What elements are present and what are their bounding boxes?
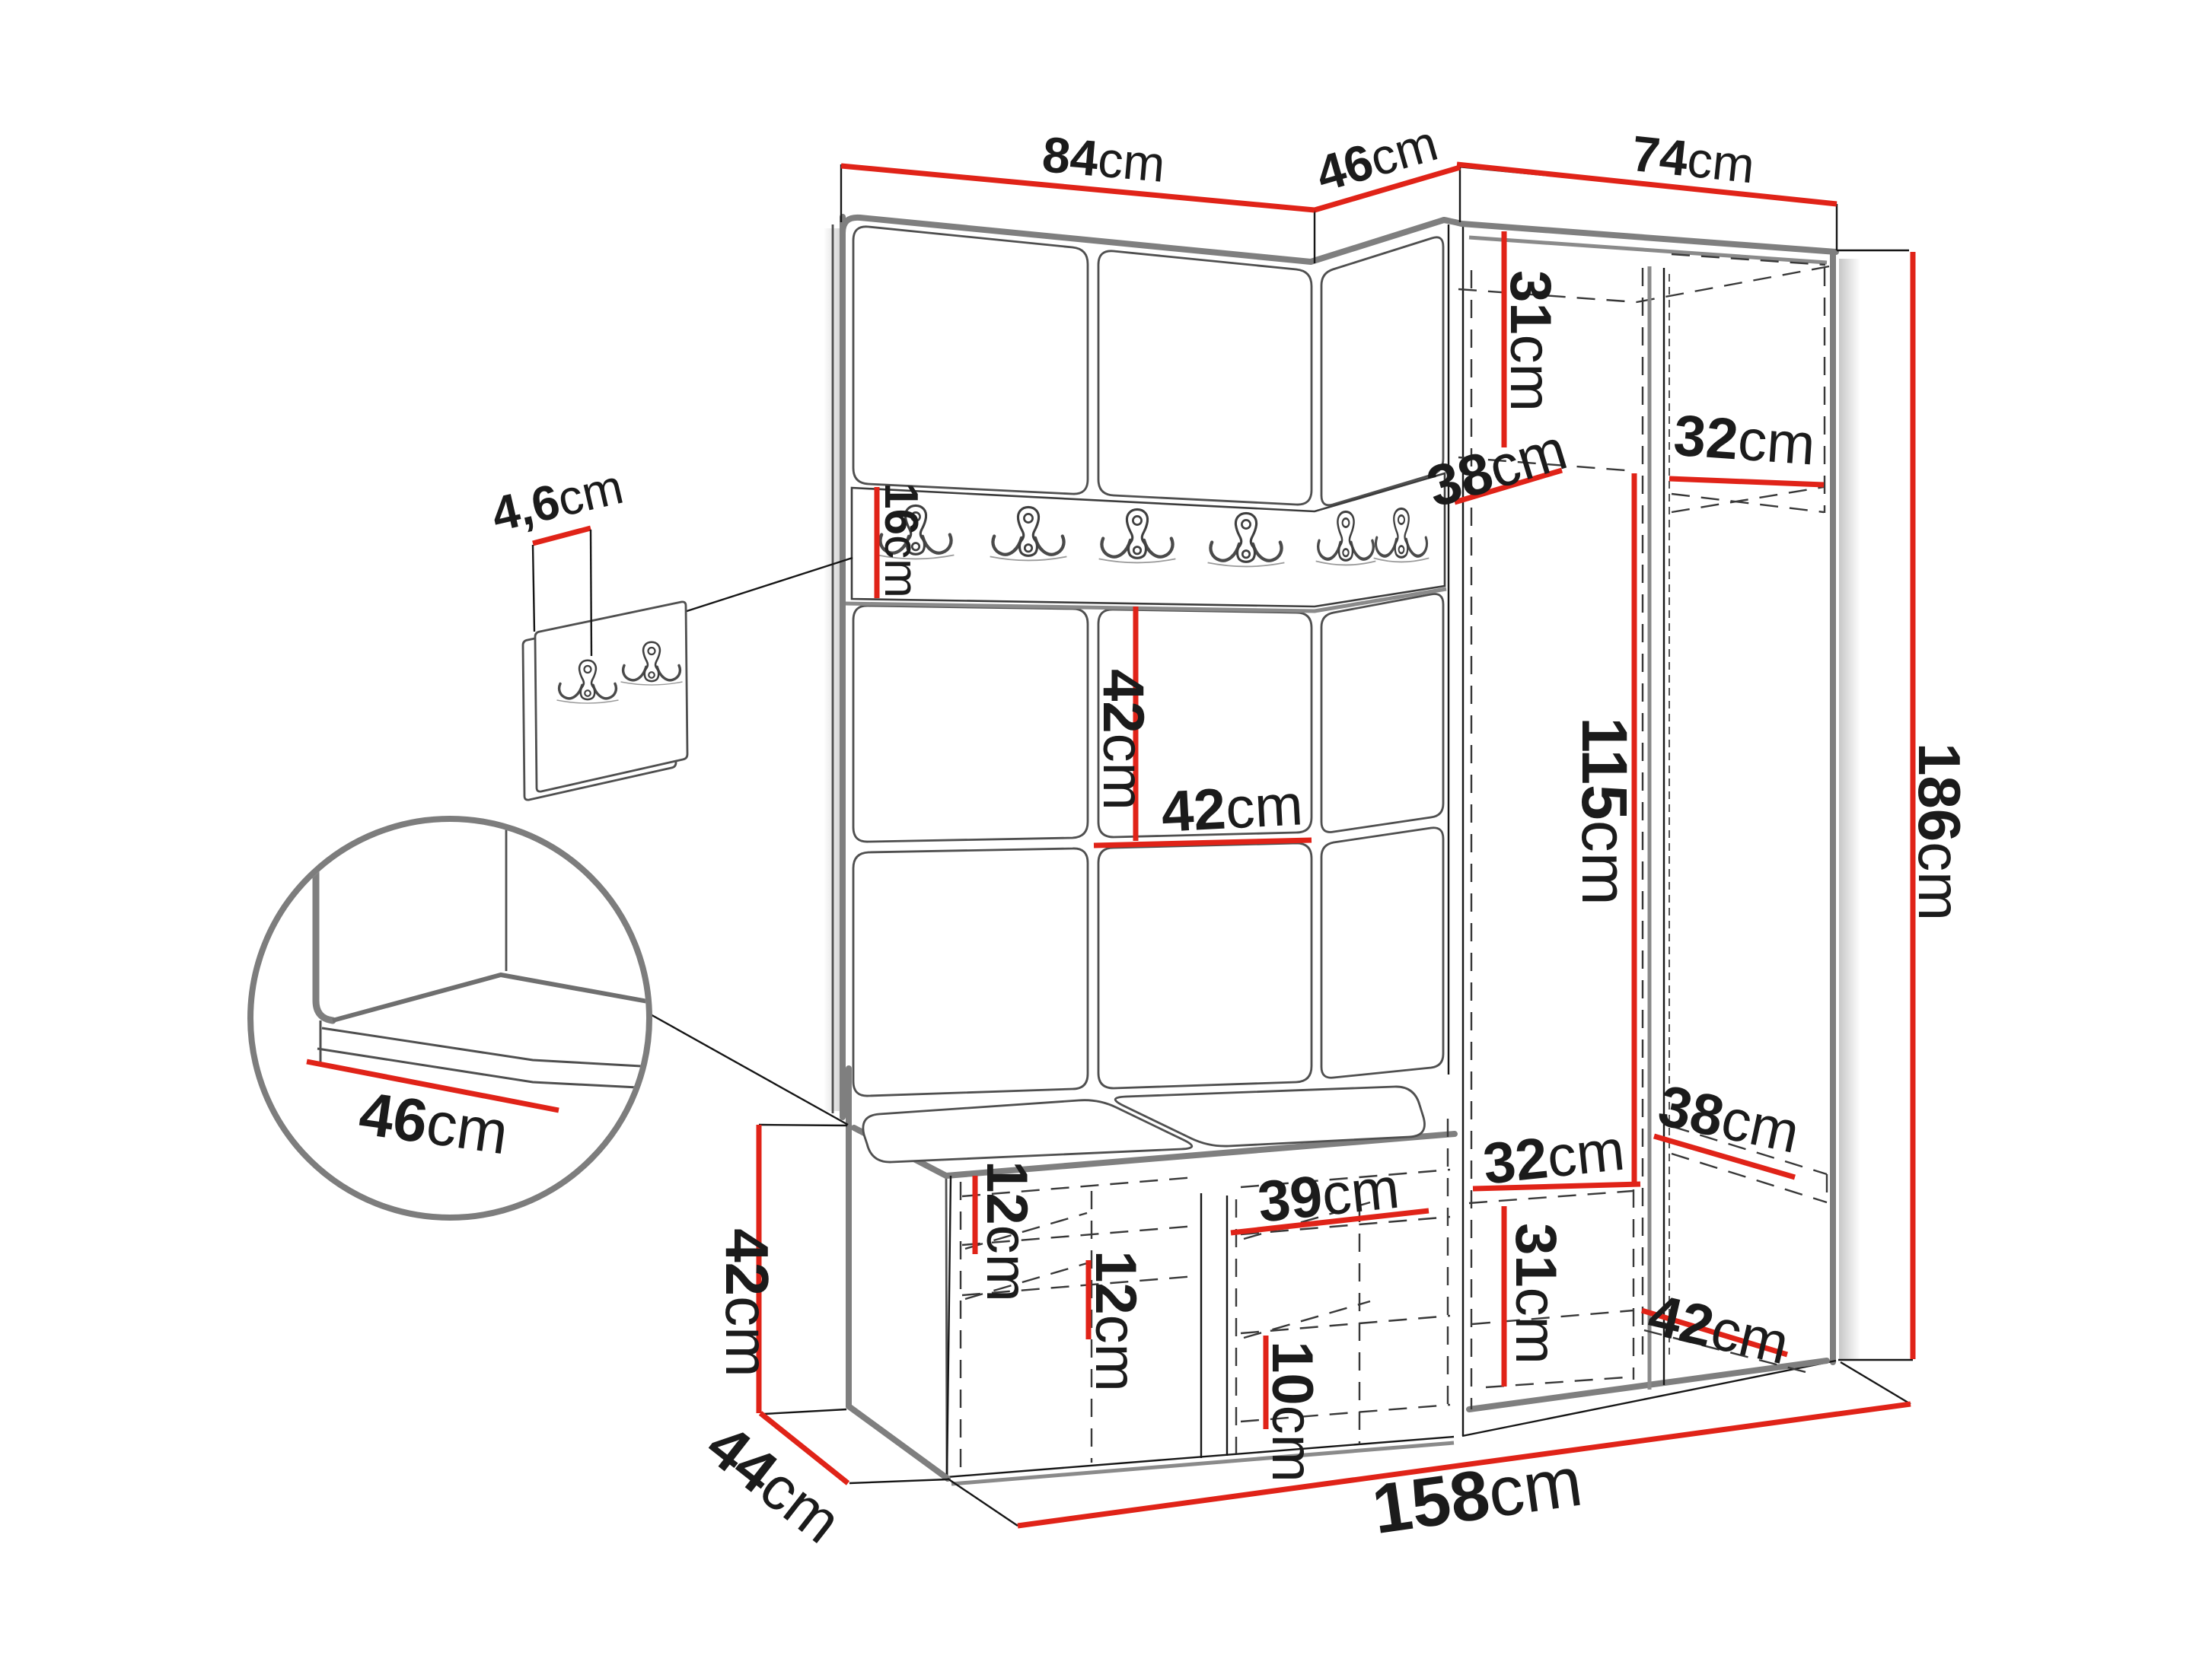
svg-text:12cm: 12cm: [1083, 1250, 1148, 1392]
svg-text:10cm: 10cm: [1260, 1341, 1324, 1482]
svg-text:42cm: 42cm: [1091, 669, 1155, 810]
svg-text:42cm: 42cm: [1160, 772, 1305, 845]
svg-text:32cm: 32cm: [1672, 403, 1817, 478]
svg-text:12cm: 12cm: [974, 1161, 1039, 1302]
svg-text:115cm: 115cm: [1569, 717, 1640, 906]
svg-text:186cm: 186cm: [1906, 743, 1973, 921]
svg-text:16cm: 16cm: [875, 482, 927, 598]
svg-text:42cm: 42cm: [713, 1228, 781, 1377]
svg-text:31cm: 31cm: [1503, 1223, 1568, 1364]
svg-text:84cm: 84cm: [1040, 126, 1167, 193]
svg-text:31cm: 31cm: [1498, 270, 1563, 412]
